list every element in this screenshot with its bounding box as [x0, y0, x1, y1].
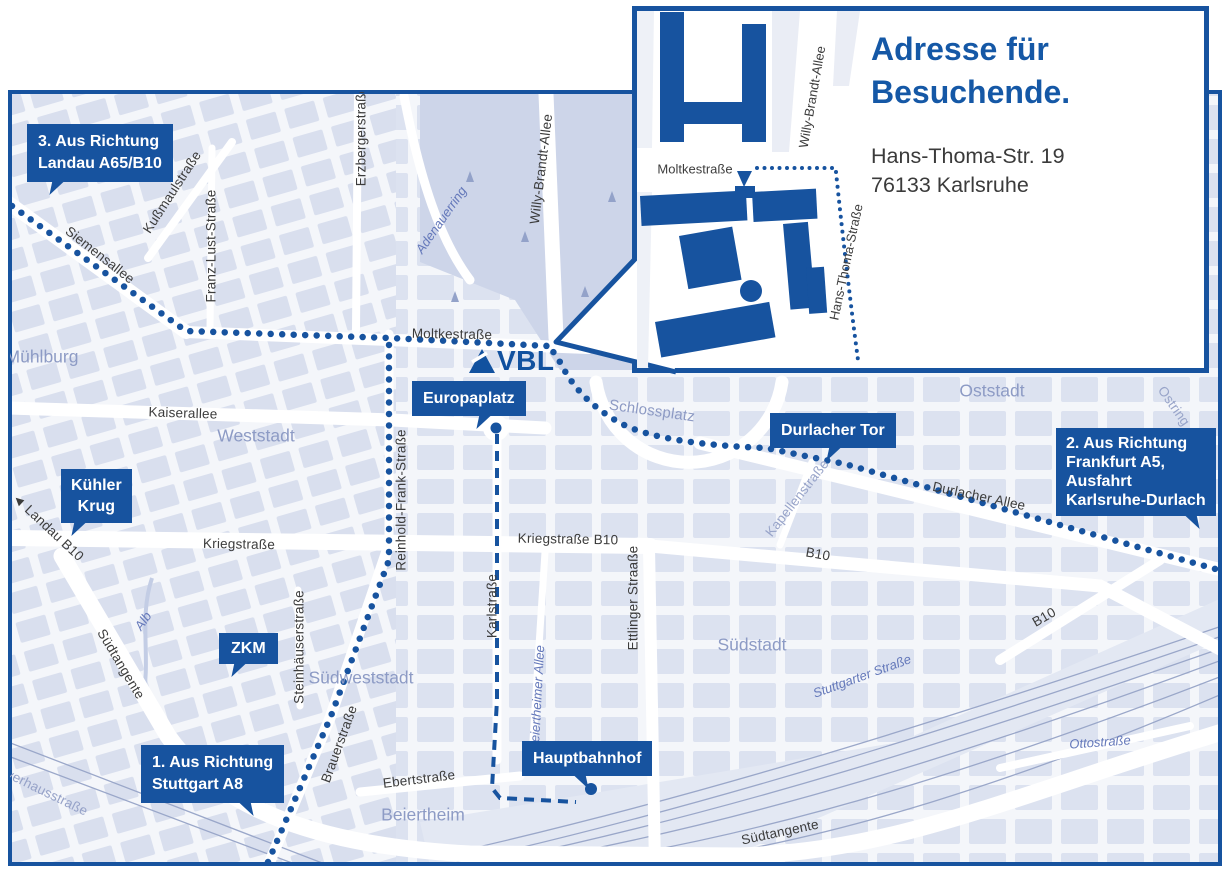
street-label-kriegstrasse-b10: Kriegstraße B10: [518, 531, 619, 548]
street-label-schlossplatz: Schlossplatz: [608, 397, 696, 426]
street-label-b10-mid: B10: [805, 544, 832, 563]
callout-durlacher-tor-line1: Durlacher Tor: [781, 420, 885, 441]
callout-frankfurt-line2: Frankfurt A5,: [1066, 453, 1206, 472]
street-label-siemensallee: Siemensallee: [63, 223, 138, 286]
area-label-suedweststadt: Südweststadt: [308, 668, 413, 689]
inset-title-line1: Adresse für: [871, 28, 1070, 71]
callout-durlacher-tor: Durlacher Tor: [770, 413, 896, 448]
street-label-karlstrasse: Karlstraße: [485, 574, 500, 638]
street-label-steinhaeuserstrasse: Steinhäuserstraße: [292, 590, 307, 704]
street-label-kriegstrasse: Kriegstraße: [203, 536, 275, 552]
callout-stuttgart-line2: Stuttgart A8: [152, 774, 273, 796]
callout-pointer: [826, 446, 842, 461]
street-label-stuttgarter-strasse: Stuttgarter Straße: [811, 651, 913, 700]
vbl-logo: VBL: [497, 345, 555, 377]
area-label-suedstadt: Südstadt: [717, 635, 786, 656]
street-label-erzbergerstrasse: Erzbergerstraße: [354, 86, 369, 187]
callout-stuttgart: 1. Aus Richtung Stuttgart A8: [141, 745, 284, 803]
callout-kuehler-line2: Krug: [71, 496, 122, 517]
street-label-ettlinger-strasse: Ettlinger Straaße: [626, 546, 641, 651]
street-label-willy-brandt-allee: Willy-Brandt-Allee: [527, 113, 555, 225]
callout-landau: 3. Aus Richtung Landau A65/B10: [27, 124, 173, 182]
callout-frankfurt-line4: Karlsruhe-Durlach: [1066, 491, 1206, 510]
area-label-weststadt: Weststadt: [217, 426, 295, 447]
callout-europaplatz-line1: Europaplatz: [423, 388, 515, 409]
street-label-brauerstrasse: Brauerstraße: [318, 703, 360, 784]
area-label-muehlburg: Mühlburg: [6, 347, 79, 368]
callout-kuehler-line1: Kühler: [71, 475, 122, 496]
street-label-ottostrasse: Ottostraße: [1069, 732, 1131, 751]
karlsruhe-directions-map: Siemensallee Kußmaulstraße Franz-Lust-St…: [0, 0, 1230, 874]
street-label-ostring: Ostring: [1155, 383, 1193, 428]
callout-hauptbahnhof: Hauptbahnhof: [522, 741, 652, 776]
callout-pointer: [1183, 514, 1199, 529]
callout-zkm: ZKM: [219, 633, 278, 664]
callout-frankfurt: 2. Aus Richtung Frankfurt A5, Ausfahrt K…: [1056, 428, 1216, 516]
street-label-reinhold-frank-strasse: Reinhold-Frank-Straße: [394, 429, 409, 571]
street-label-suedtangente-sued: Südtangente: [740, 816, 820, 847]
callout-europaplatz: Europaplatz: [412, 381, 526, 416]
callout-pointer: [572, 774, 588, 789]
street-label-kaiserallee: Kaiserallee: [148, 404, 217, 421]
street-label-b10-east: B10: [1030, 604, 1059, 629]
area-label-oststadt: Oststadt: [959, 381, 1024, 402]
street-label-durlacher-allee: Durlacher Allee: [931, 479, 1027, 513]
callout-frankfurt-line3: Ausfahrt: [1066, 472, 1206, 491]
callout-pointer: [476, 414, 492, 429]
callout-pointer: [49, 180, 65, 195]
callout-pointer: [238, 801, 254, 816]
callout-pointer: [71, 521, 87, 536]
street-label-alb: Alb: [131, 609, 154, 633]
callout-kuehler-krug: Kühler Krug: [61, 469, 132, 523]
callout-hauptbahnhof-line1: Hauptbahnhof: [533, 748, 641, 769]
inset-title-line2: Besuchende.: [871, 71, 1070, 114]
callout-frankfurt-line1: 2. Aus Richtung: [1066, 434, 1206, 453]
street-label-franz-lust-strasse: Franz-Lust-Straße: [204, 190, 219, 303]
inset-address: Hans-Thoma-Str. 19 76133 Karlsruhe: [871, 142, 1065, 200]
inset-address-line1: Hans-Thoma-Str. 19: [871, 142, 1065, 171]
inset-title: Adresse für Besuchende.: [871, 28, 1070, 114]
street-label-suedtangente-west: Südtangente: [94, 626, 147, 701]
street-label-kapellenstrasse: Kapellenstraße: [762, 456, 831, 539]
callout-stuttgart-line1: 1. Aus Richtung: [152, 752, 273, 774]
area-label-beiertheim: Beiertheim: [381, 805, 465, 826]
street-label-pulverhausstrasse: Pulverhausstraße: [0, 757, 90, 818]
callout-pointer: [231, 662, 247, 677]
callout-landau-line2: Landau A65/B10: [38, 153, 162, 175]
callout-zkm-line1: ZKM: [231, 638, 266, 659]
street-label-moltkestrasse: Moltkestraße: [412, 326, 493, 342]
street-label-ebertstrasse: Ebertstraße: [382, 767, 456, 791]
street-label-beiertheimer-allee: Beiertheimer Allee: [527, 645, 548, 751]
callout-landau-line1: 3. Aus Richtung: [38, 131, 162, 153]
inset-address-line2: 76133 Karlsruhe: [871, 171, 1065, 200]
street-label-adenauerring: Adenauerring: [412, 184, 469, 257]
